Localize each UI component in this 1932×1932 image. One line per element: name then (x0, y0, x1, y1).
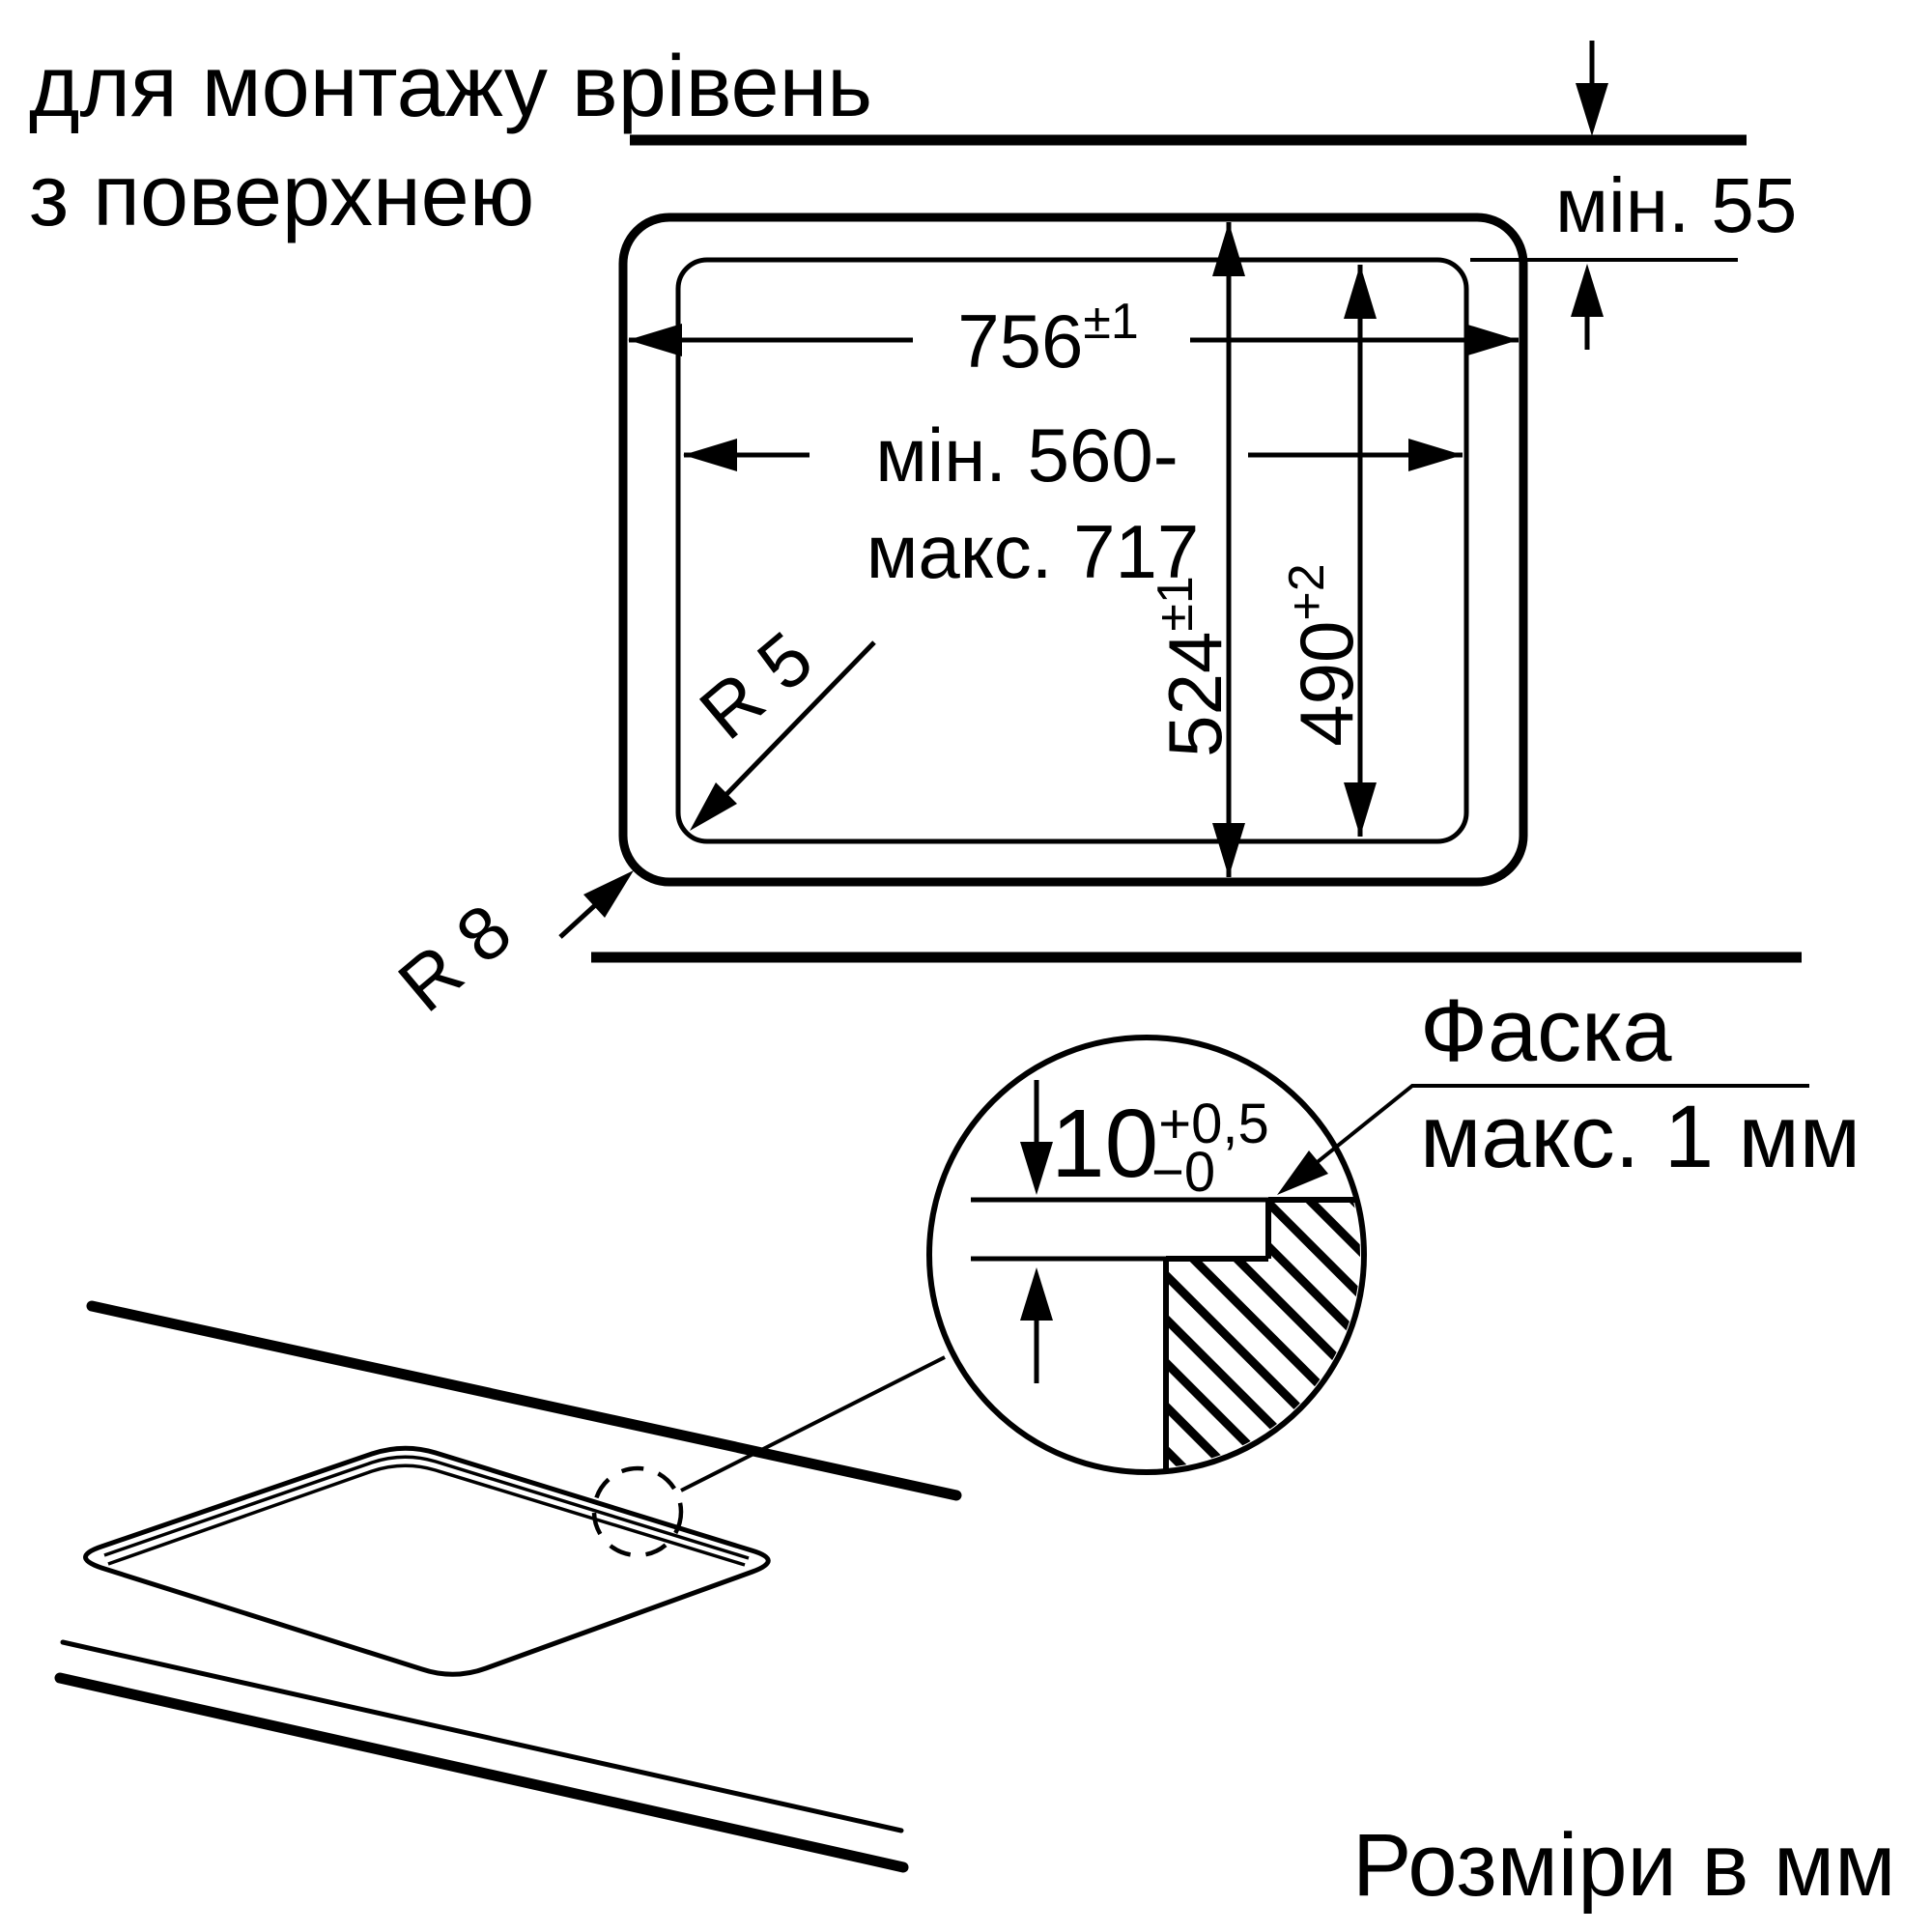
dim-outer-width-arrowhead-left-icon (628, 324, 682, 356)
hob-edge-detail-line1 (104, 1457, 749, 1558)
dim-inner-width-arrowhead-left-icon (683, 439, 737, 471)
installation-diagram-page: для монтажу врівень з поверхнею мін. 55 … (0, 0, 1932, 1932)
flush-mount-technical-drawing: для монтажу врівень з поверхнею мін. 55 … (0, 0, 1932, 1932)
dim-outer-depth-arrowhead-top-icon (1212, 222, 1245, 276)
dim-inner-radius-label: R 5 (684, 615, 829, 755)
hatched-cross-section (1166, 1200, 1410, 1492)
hob-outline (86, 1448, 769, 1674)
chamfer-label-line2: макс. 1 мм (1420, 1088, 1861, 1186)
dim-inner-width-arrowhead-right-icon (1408, 439, 1463, 471)
dim-inner-depth-arrowhead-top-icon (1344, 265, 1377, 319)
hob-edge-detail-line2 (108, 1465, 745, 1565)
dim-outer-width-arrowhead-right-icon (1464, 324, 1519, 356)
dim-inner-width-label-line1: мін. 560- (875, 412, 1179, 497)
title-line2: з поверхнею (29, 148, 534, 244)
recess-depth-up-arrowhead-icon (1020, 1267, 1053, 1321)
recess-depth-down-arrowhead-icon (1020, 1142, 1053, 1195)
dim-inner-depth-label: 490+2 (1279, 563, 1369, 746)
dim-outer-radius-label: R 8 (383, 888, 527, 1028)
min55-up-arrowhead-icon (1571, 264, 1604, 317)
chamfer-label-line1: Фаска (1420, 981, 1672, 1080)
detail-reference-line (681, 1357, 945, 1491)
dim-outer-depth-arrowhead-bottom-icon (1212, 823, 1245, 877)
perspective-worktop-back-line (92, 1306, 956, 1495)
perspective-worktop-front-thick-line (60, 1678, 903, 1867)
title-line1: для монтажу врівень (29, 39, 872, 135)
dim-recess-depth-label: 10+0,5−0 (1051, 1090, 1269, 1204)
dim-outer-depth-label: 524±1 (1148, 576, 1237, 757)
dim-inner-depth-arrowhead-bottom-icon (1344, 782, 1377, 837)
dim-outer-width-label: 756±1 (957, 294, 1139, 384)
units-note: Розміри в мм (1352, 1816, 1895, 1915)
min55-down-arrowhead-icon (1576, 83, 1608, 136)
dim-top-clearance-label: мін. 55 (1555, 162, 1797, 248)
